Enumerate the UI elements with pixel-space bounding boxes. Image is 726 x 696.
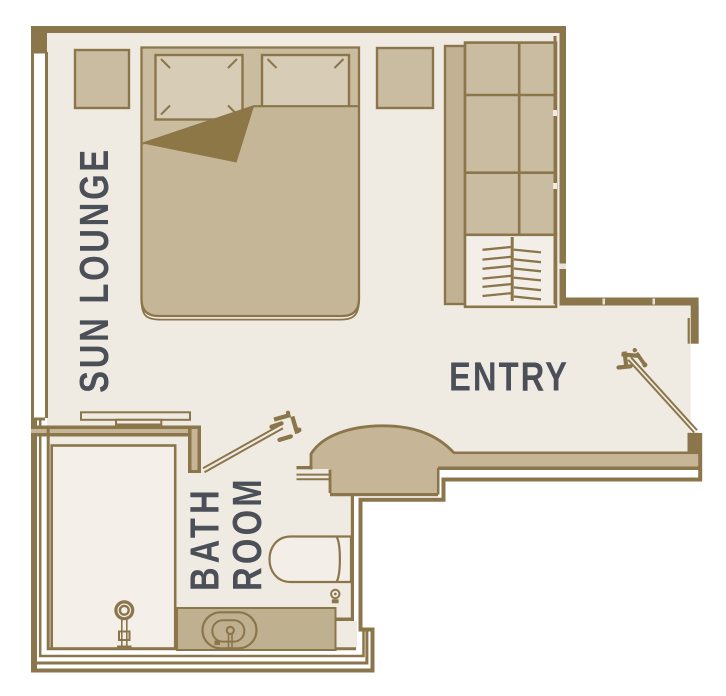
svg-text:BATH: BATH xyxy=(181,486,227,591)
svg-text:ROOM: ROOM xyxy=(223,476,269,591)
svg-text:ENTRY: ENTRY xyxy=(449,353,569,399)
svg-text:SUN LOUNGE: SUN LOUNGE xyxy=(70,147,116,393)
